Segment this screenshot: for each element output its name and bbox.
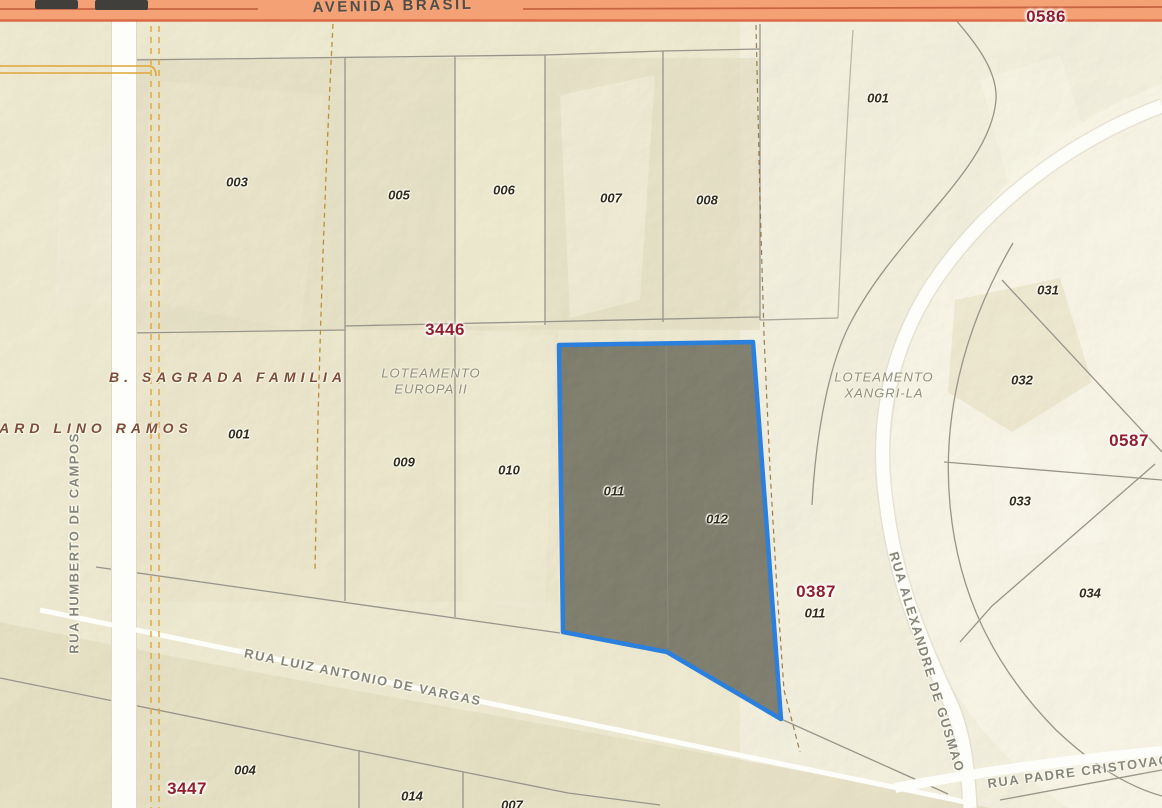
- building-footprint: [95, 0, 148, 10]
- road-avenida-brasil: [0, 0, 1162, 21]
- road-rua-humberto: [111, 20, 137, 808]
- map-canvas[interactable]: [0, 0, 1162, 808]
- map-viewport[interactable]: AVENIDA BRASIL RUA HUMBERTO DE CAMPOS RU…: [0, 0, 1162, 808]
- building-footprint: [35, 0, 78, 9]
- texture-overlay-2: [0, 0, 1162, 808]
